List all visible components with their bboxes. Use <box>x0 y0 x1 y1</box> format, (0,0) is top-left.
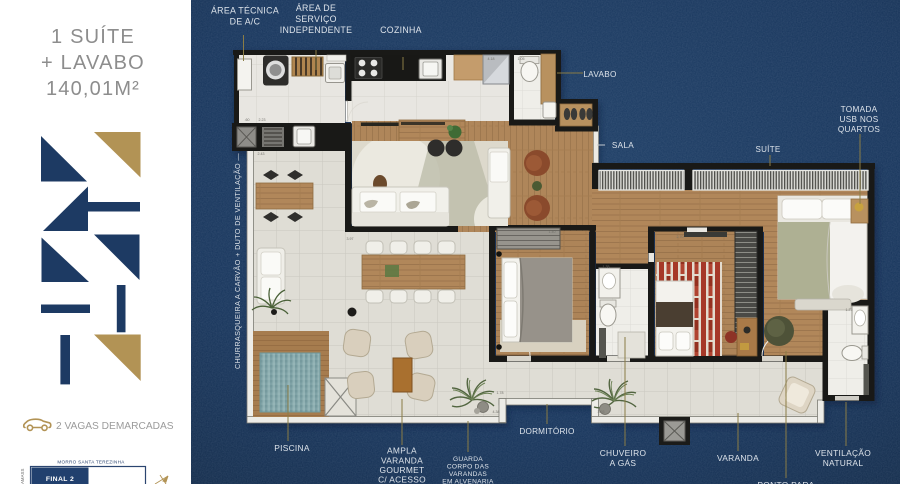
svg-text:COZINHA: COZINHA <box>380 25 422 35</box>
svg-text:4.38: 4.38 <box>493 410 500 414</box>
svg-text:GUARDA: GUARDA <box>453 456 483 463</box>
svg-text:3.97: 3.97 <box>347 237 354 241</box>
svg-text:VARANDA: VARANDA <box>717 453 759 463</box>
svg-text:ÁREA TÉCNICA: ÁREA TÉCNICA <box>211 6 279 16</box>
svg-text:CORPO DAS: CORPO DAS <box>447 464 490 471</box>
svg-text:2.23: 2.23 <box>259 118 266 122</box>
svg-text:PISCINA: PISCINA <box>274 443 310 453</box>
svg-text:DE A/C: DE A/C <box>230 17 261 27</box>
svg-text:TOMADA: TOMADA <box>841 105 878 114</box>
svg-text:2 VAGAS DEMARCADAS: 2 VAGAS DEMARCADAS <box>56 421 174 432</box>
svg-text:NATURAL: NATURAL <box>823 458 864 468</box>
svg-text:INDEPENDENTE: INDEPENDENTE <box>280 25 353 35</box>
svg-text:FINAL 2: FINAL 2 <box>46 476 74 483</box>
svg-text:2.43: 2.43 <box>258 152 265 156</box>
svg-text:.60: .60 <box>245 118 250 122</box>
svg-text:1 SUÍTE: 1 SUÍTE <box>51 25 135 48</box>
svg-text:1.35: 1.35 <box>603 265 610 269</box>
svg-text:SALA: SALA <box>612 141 634 150</box>
svg-text:AMASS: AMASS <box>20 469 25 484</box>
svg-text:SUÍTE: SUÍTE <box>755 145 780 154</box>
svg-text:140,01M²: 140,01M² <box>46 78 140 100</box>
svg-text:CHUVEIRO: CHUVEIRO <box>600 448 647 458</box>
svg-text:A GÁS: A GÁS <box>610 458 637 468</box>
svg-text:+ LAVABO: + LAVABO <box>41 52 145 74</box>
svg-text:C/ ACESSO: C/ ACESSO <box>378 475 426 484</box>
svg-text:AMPLA: AMPLA <box>387 446 417 456</box>
svg-text:MORRO SANTA TEREZINHA: MORRO SANTA TEREZINHA <box>57 460 125 465</box>
svg-text:1.78: 1.78 <box>497 391 504 395</box>
svg-text:GOURMET: GOURMET <box>380 465 425 475</box>
svg-text:SERVIÇO: SERVIÇO <box>295 14 337 24</box>
svg-text:CHURRASQUEIRA A CARVÃO + DUTO: CHURRASQUEIRA A CARVÃO + DUTO DE VENTILA… <box>233 153 242 369</box>
svg-text:VENTILAÇÃO: VENTILAÇÃO <box>815 448 871 458</box>
svg-text:VARANDA: VARANDA <box>381 456 423 466</box>
svg-text:USB NOS: USB NOS <box>840 115 879 124</box>
svg-text:VARANDAS: VARANDAS <box>449 471 487 478</box>
svg-text:ÁREA DE: ÁREA DE <box>296 3 336 13</box>
svg-text:PONTO PARA: PONTO PARA <box>757 480 814 484</box>
svg-text:1.25: 1.25 <box>846 308 853 312</box>
svg-text:DORMITÓRIO: DORMITÓRIO <box>519 426 574 436</box>
svg-text:EM ALVENARIA: EM ALVENARIA <box>442 479 494 484</box>
svg-text:QUARTOS: QUARTOS <box>838 125 881 134</box>
svg-text:2.70: 2.70 <box>677 235 684 239</box>
svg-text:4.18: 4.18 <box>488 57 495 61</box>
svg-text:1.40: 1.40 <box>549 230 556 234</box>
svg-text:1.05: 1.05 <box>518 57 525 61</box>
svg-text:3.93: 3.93 <box>598 410 605 414</box>
svg-text:LAVABO: LAVABO <box>583 70 616 79</box>
